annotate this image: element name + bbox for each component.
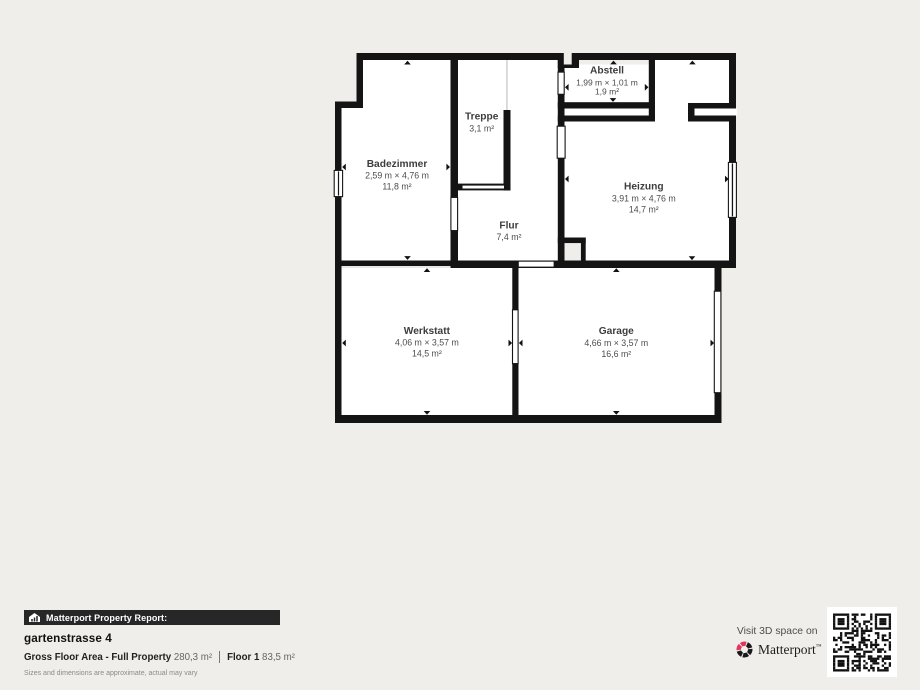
- svg-text:Werkstatt: Werkstatt: [404, 326, 451, 337]
- svg-text:3,1 m²: 3,1 m²: [469, 123, 494, 133]
- svg-text:11,8 m²: 11,8 m²: [382, 182, 411, 192]
- svg-text:3,91 m × 4,76 m: 3,91 m × 4,76 m: [612, 193, 676, 203]
- svg-text:Flur: Flur: [499, 220, 518, 231]
- svg-text:14,7 m²: 14,7 m²: [629, 204, 659, 214]
- svg-text:4,66 m × 3,57 m: 4,66 m × 3,57 m: [584, 338, 648, 348]
- svg-text:7,4 m²: 7,4 m²: [497, 232, 522, 242]
- svg-text:Badezimmer: Badezimmer: [367, 159, 428, 170]
- svg-text:2,59 m × 4,76 m: 2,59 m × 4,76 m: [365, 171, 429, 181]
- svg-text:Garage: Garage: [599, 326, 634, 337]
- svg-text:1,9 m²: 1,9 m²: [595, 87, 619, 97]
- svg-text:4,06 m × 3,57 m: 4,06 m × 3,57 m: [395, 338, 459, 348]
- svg-text:Heizung: Heizung: [624, 182, 664, 193]
- svg-text:14,5 m²: 14,5 m²: [412, 349, 442, 359]
- svg-text:Abstell: Abstell: [590, 65, 624, 76]
- svg-text:16,6 m²: 16,6 m²: [601, 349, 631, 359]
- svg-text:Treppe: Treppe: [465, 112, 499, 123]
